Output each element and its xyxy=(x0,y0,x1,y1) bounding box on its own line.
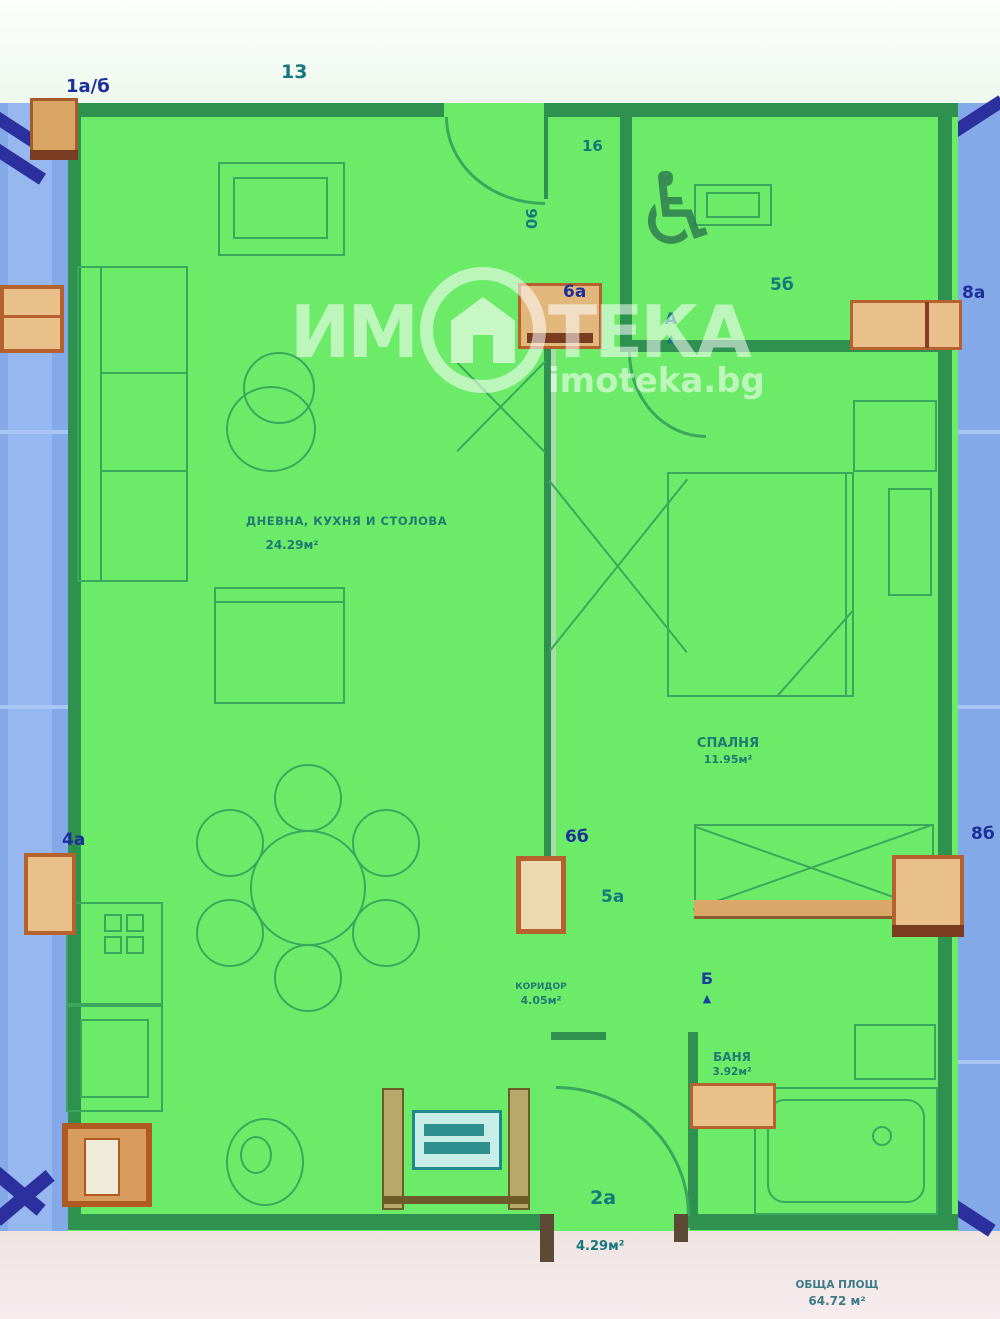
wall-central xyxy=(544,349,551,861)
window-post xyxy=(382,1088,404,1210)
column-marker-top-left xyxy=(30,98,78,154)
kitchen-sink xyxy=(80,1019,149,1098)
bed-headboard-line xyxy=(845,474,847,695)
window-marker-left-lower xyxy=(24,853,76,935)
summary-title: ОБЩА ПЛОЩ xyxy=(758,1278,916,1293)
axis-label: 8а xyxy=(962,285,985,302)
window-marker-accent xyxy=(892,925,964,937)
exterior-top xyxy=(0,0,1000,103)
armchair-seat xyxy=(226,386,316,472)
ac-unit-bar xyxy=(424,1142,490,1154)
wall-central-shade xyxy=(551,349,556,861)
bed xyxy=(667,472,854,697)
hob-burner xyxy=(104,914,122,932)
corridor-area: 4.05м² xyxy=(506,994,576,1008)
dining-chair xyxy=(352,899,420,967)
nightstand xyxy=(888,488,932,596)
door-label-b: Б ▲ xyxy=(692,970,722,1007)
window-marker-left-upper xyxy=(0,285,64,353)
dim-label: 16 xyxy=(582,138,603,155)
adjacent-line xyxy=(0,705,68,709)
window-marker-right-upper xyxy=(850,300,962,350)
bathroom-area: 3.92м² xyxy=(690,1066,774,1080)
arrow-up-icon: ▲ xyxy=(703,992,711,1005)
entry-marker-accent xyxy=(527,333,593,343)
summary-value: 64.72 м² xyxy=(758,1293,916,1310)
terrace-area: 4.29м² xyxy=(576,1240,624,1255)
nightstand xyxy=(853,400,937,472)
dining-chair xyxy=(274,944,342,1012)
entrance-opening xyxy=(444,103,544,117)
bathroom-name: БАНЯ xyxy=(690,1050,774,1066)
axis-label: 6а xyxy=(563,284,586,301)
dining-chair xyxy=(352,809,420,877)
sofa-cushion-line xyxy=(102,372,186,374)
dining-chair xyxy=(196,809,264,877)
sofa xyxy=(77,266,188,582)
adjacent-left-band xyxy=(8,103,52,1231)
axis-label: 1а/б xyxy=(66,78,110,96)
window-marker-right-lower xyxy=(892,855,964,935)
hob-burner xyxy=(126,914,144,932)
terrace-number: 2а xyxy=(590,1188,616,1210)
bathtub-drain xyxy=(872,1126,892,1146)
wall-bath1-left xyxy=(620,117,632,349)
wall-corridor xyxy=(551,1032,606,1040)
axis-label: 8б xyxy=(971,826,995,843)
terrace-post xyxy=(674,1214,688,1242)
terrace-post xyxy=(540,1214,554,1262)
dim-label: 90 xyxy=(522,208,539,229)
plant-inner xyxy=(240,1136,272,1174)
floor-plan: ♿ 1а/б 6а 8а 4а 6б 8б 13 16 90 5б 5а А ▲… xyxy=(0,0,1000,1319)
window-marker-line xyxy=(925,302,929,348)
dim-label: 5а xyxy=(601,888,624,908)
wall-bottom-left xyxy=(68,1214,545,1230)
washing-machine xyxy=(854,1024,936,1080)
arrow-up-icon: ▲ xyxy=(667,332,675,345)
hob-burner xyxy=(104,936,122,954)
door-letter: Б xyxy=(701,969,713,988)
bedroom-name: СПАЛНЯ xyxy=(678,736,778,753)
wardrobe-base-bar xyxy=(694,900,908,919)
window-marker-line xyxy=(4,315,60,318)
sofa-back-line xyxy=(100,268,102,580)
coffee-table-line xyxy=(216,601,343,603)
hob-burner xyxy=(126,936,144,954)
axis-label: 4а xyxy=(62,832,85,849)
axis-label: 6б xyxy=(565,829,589,846)
wall-right xyxy=(938,103,952,1228)
bath2-door-marker xyxy=(690,1083,776,1129)
column-marker-accent xyxy=(30,150,78,160)
dining-chair xyxy=(274,764,342,832)
living-room-area: 24.29м² xyxy=(232,538,352,554)
tv-cabinet-inner xyxy=(233,177,328,239)
window-sill xyxy=(382,1196,530,1204)
door-letter: А xyxy=(665,309,677,328)
wall-bottom-right xyxy=(690,1214,958,1230)
dining-chair xyxy=(196,899,264,967)
door-label-a: А ▲ xyxy=(656,310,686,347)
living-room-name: ДНЕВНА, КУХНЯ И СТОЛОВА xyxy=(194,514,499,529)
ac-unit-bar xyxy=(424,1124,484,1136)
wheelchair-icon: ♿ xyxy=(633,160,723,260)
door-leaf-marker xyxy=(84,1138,120,1196)
dim-label: 13 xyxy=(281,62,307,84)
bedroom-area: 11.95м² xyxy=(678,753,778,767)
corridor-name: КОРИДОР xyxy=(506,982,576,994)
dim-label: 5б xyxy=(770,276,794,296)
adjacent-line xyxy=(0,430,68,434)
coffee-table xyxy=(214,587,345,704)
window-post xyxy=(508,1088,530,1210)
ac-unit xyxy=(412,1110,502,1170)
bathtub-inner xyxy=(767,1099,925,1203)
sofa-cushion-line xyxy=(102,470,186,472)
dining-table xyxy=(250,830,366,946)
column-marker-center-lower xyxy=(516,856,566,934)
